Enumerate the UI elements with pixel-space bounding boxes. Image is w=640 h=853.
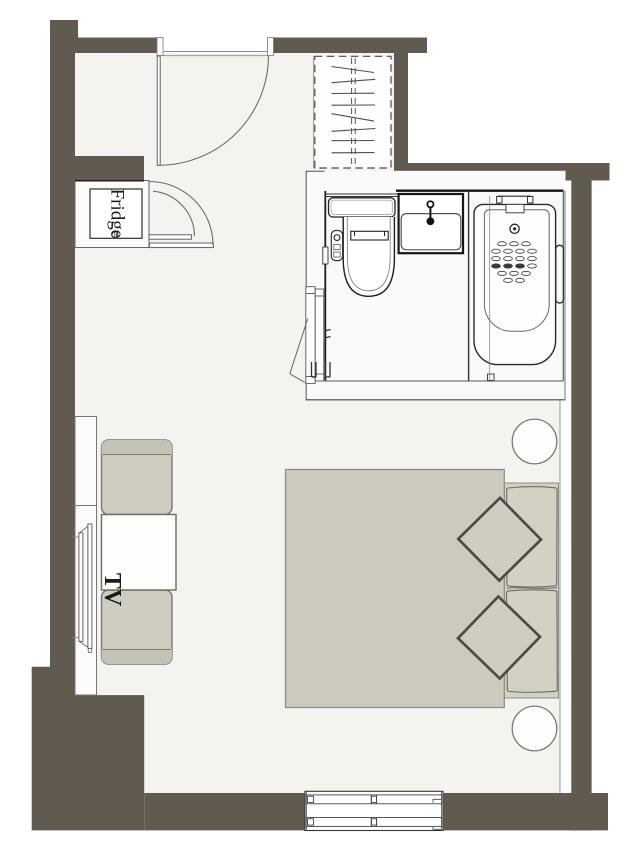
svg-text:Fridge: Fridge (107, 189, 128, 239)
svg-text:TV: TV (99, 573, 125, 607)
